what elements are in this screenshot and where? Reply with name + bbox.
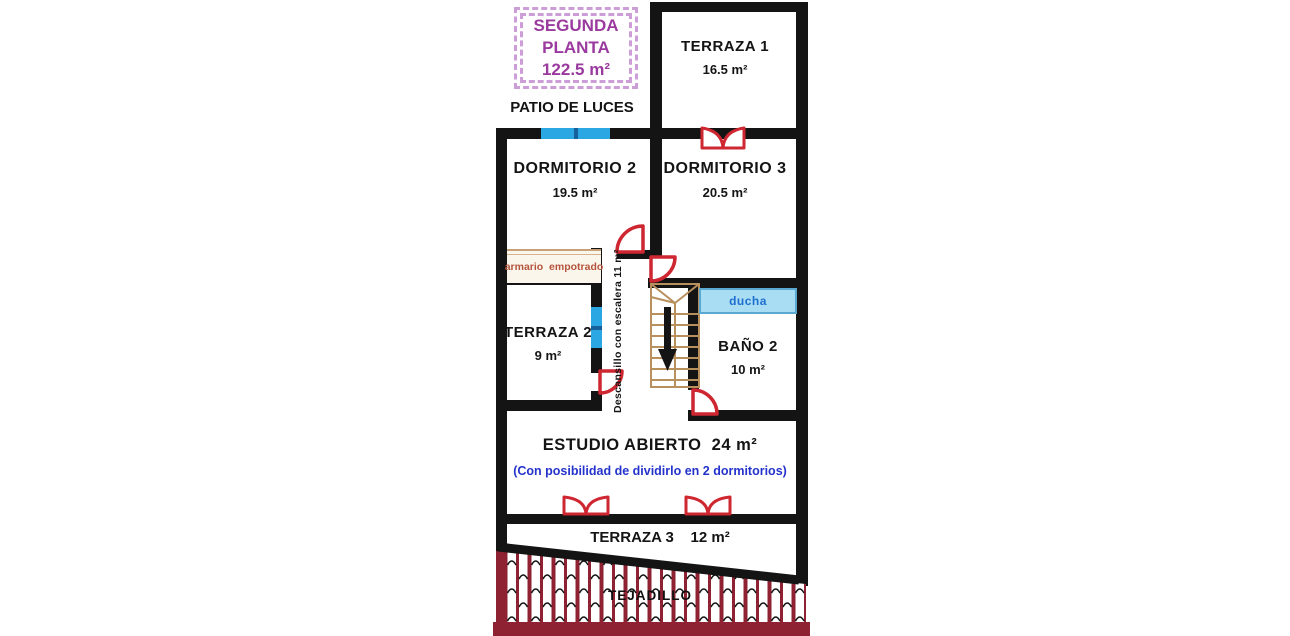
terraza2-label: TERRAZA 2 9 m²	[498, 324, 598, 363]
window-estudio-left	[562, 495, 610, 516]
room-area: 16.5 m²	[655, 62, 795, 77]
floor-plan: SEGUNDA PLANTA 122.5 m² PATIO DE LUCES T…	[0, 0, 1290, 636]
plan-title-line: PLANTA	[542, 37, 610, 59]
plan-title-box: SEGUNDA PLANTA 122.5 m²	[514, 7, 638, 89]
room-name: TERRAZA 2	[498, 324, 598, 341]
tejadillo-label: TEJADILLO	[595, 588, 705, 603]
window-terraza1	[700, 126, 746, 150]
descansillo-label: Descansillo con escalera 11 m²	[606, 250, 630, 412]
patio-de-luces-label: PATIO DE LUCES	[498, 99, 646, 116]
estudio-abierto-label: ESTUDIO ABIERTO 24 m² (Con posibilidad d…	[500, 436, 800, 478]
window-patio-blue	[541, 128, 610, 139]
dormitorio2-label: DORMITORIO 2 19.5 m²	[500, 160, 650, 200]
room-name: DORMITORIO 2	[500, 160, 650, 178]
armario-empotrado: armario empotrado	[507, 249, 601, 283]
dormitorio3-label: DORMITORIO 3 20.5 m²	[650, 160, 800, 200]
room-area: 19.5 m²	[500, 185, 650, 200]
room-name: BAÑO 2	[698, 338, 798, 355]
estudio-note: (Con posibilidad de dividirlo en 2 dormi…	[500, 464, 800, 478]
door-arc-dormitorio3	[648, 254, 678, 284]
wall-outer-right	[796, 2, 808, 586]
plan-title-line: SEGUNDA	[533, 15, 618, 37]
room-name: ESTUDIO ABIERTO 24 m²	[500, 436, 800, 455]
terraza1-label: TERRAZA 1 16.5 m²	[655, 38, 795, 77]
window-divider-tick	[574, 128, 578, 139]
ducha-shower: ducha	[699, 288, 797, 314]
room-area: 10 m²	[698, 362, 798, 377]
staircase	[650, 283, 700, 388]
wall-estudio-bottom	[496, 514, 808, 524]
plan-title-area: 122.5 m²	[542, 59, 610, 81]
wall-terraza2-bottom	[496, 400, 602, 411]
wall-terraza1-top	[650, 2, 808, 12]
room-area: 9 m²	[498, 348, 598, 363]
door-arc-bano2	[690, 387, 720, 417]
terraza3-label: TERRAZA 3 12 m²	[545, 529, 775, 546]
room-area: 20.5 m²	[650, 185, 800, 200]
room-name: DORMITORIO 3	[650, 160, 800, 178]
room-name: TERRAZA 1	[655, 38, 795, 55]
window-estudio-right	[684, 495, 732, 516]
bano2-label: BAÑO 2 10 m²	[698, 338, 798, 377]
